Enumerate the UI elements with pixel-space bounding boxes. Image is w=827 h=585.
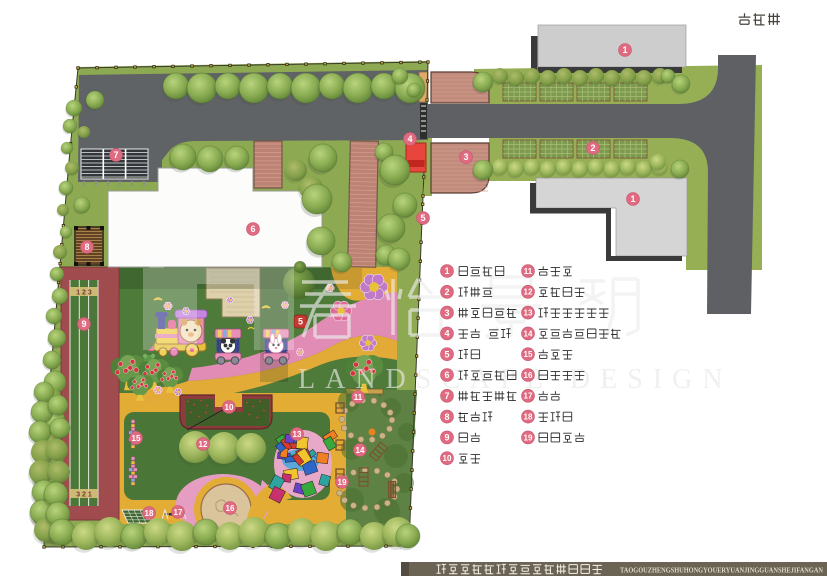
svg-text:17: 17	[174, 508, 183, 517]
svg-text:14: 14	[524, 329, 533, 338]
svg-text:2: 2	[590, 143, 595, 153]
svg-text:9: 9	[444, 433, 449, 443]
svg-text:10: 10	[225, 403, 234, 412]
svg-text:7: 7	[444, 391, 449, 401]
svg-text:13: 13	[293, 430, 302, 439]
svg-text:5: 5	[444, 349, 449, 359]
svg-text:16: 16	[524, 371, 533, 380]
svg-text:4: 4	[407, 134, 412, 144]
svg-text:13: 13	[524, 309, 533, 318]
svg-text:3: 3	[444, 308, 449, 318]
svg-text:4: 4	[444, 329, 449, 339]
svg-text:12: 12	[524, 288, 533, 297]
svg-text:19: 19	[524, 433, 533, 442]
svg-text:15: 15	[132, 434, 141, 443]
svg-text:1: 1	[630, 194, 635, 204]
svg-text:TAOGOUZHENGSHUHONGYOUERYUANJIN: TAOGOUZHENGSHUHONGYOUERYUANJINGGUANSHEJI…	[620, 566, 823, 575]
svg-text:11: 11	[524, 267, 533, 276]
svg-text:19: 19	[338, 478, 347, 487]
svg-text:14: 14	[356, 446, 365, 455]
svg-text:8: 8	[444, 412, 449, 422]
svg-text:18: 18	[145, 509, 154, 518]
svg-text:3 2 1: 3 2 1	[76, 492, 92, 499]
svg-text:1: 1	[622, 45, 627, 55]
svg-text:1: 1	[444, 266, 449, 276]
svg-text:3: 3	[463, 152, 468, 162]
svg-text:5: 5	[298, 317, 303, 327]
svg-text:18: 18	[524, 413, 533, 422]
svg-text:16: 16	[226, 504, 235, 513]
svg-text:17: 17	[524, 392, 533, 401]
svg-text:1 2 3: 1 2 3	[76, 290, 92, 297]
svg-text:12: 12	[199, 440, 208, 449]
svg-text:15: 15	[524, 350, 533, 359]
svg-text:2: 2	[444, 287, 449, 297]
svg-text:5: 5	[420, 213, 425, 223]
svg-text:9: 9	[81, 319, 86, 329]
svg-text:8: 8	[84, 242, 89, 252]
svg-text:6: 6	[250, 224, 255, 234]
svg-text:6: 6	[444, 370, 449, 380]
svg-text:7: 7	[113, 150, 118, 160]
svg-text:10: 10	[443, 454, 452, 463]
